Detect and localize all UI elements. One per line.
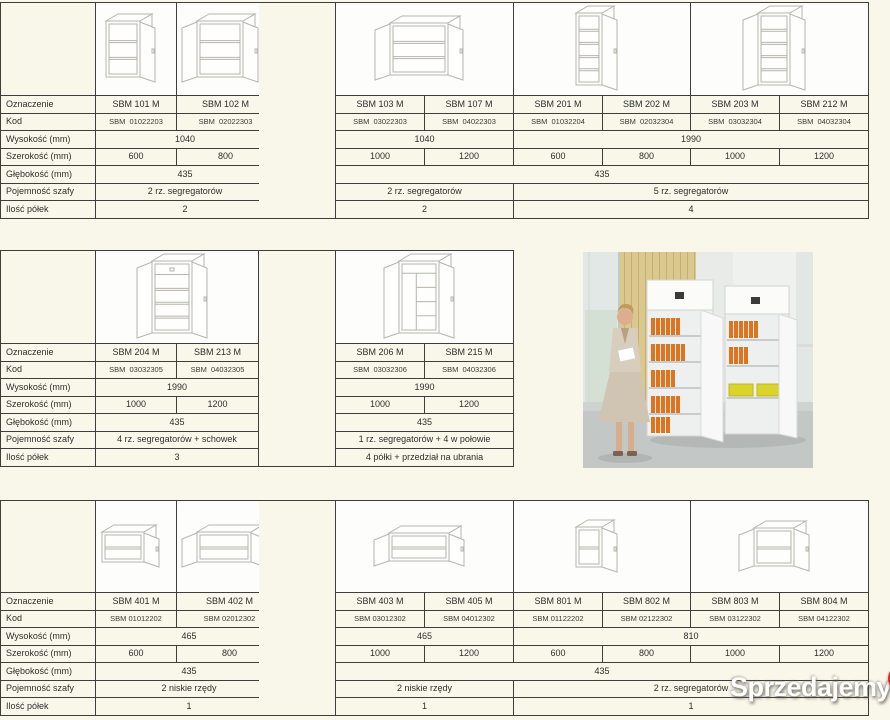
- drawing-row: [336, 3, 869, 96]
- row-label: Kod: [1, 361, 96, 379]
- spec-value-cell: 800: [603, 645, 691, 663]
- row-label: Pojemność szafy: [1, 183, 96, 201]
- product-code-cell: SBM 04032304: [780, 113, 869, 131]
- product-code-cell: SBM 01022203: [96, 113, 177, 131]
- row-label: Ilość półek: [1, 449, 96, 467]
- product-name-cell: SBM 202 M: [603, 96, 691, 114]
- row-label: Ilość półek: [1, 201, 96, 219]
- product-photo: [583, 252, 813, 468]
- cabinet-1door-5shelf-tall-icon: [514, 3, 691, 96]
- spec-row: 465810: [336, 628, 869, 646]
- spec-value-cell: 1990: [336, 379, 514, 397]
- spec-row: Wysokość (mm)1990: [1, 379, 259, 397]
- spec-row: Pojemność szafy2 niskie rzędy: [1, 680, 283, 698]
- row-label: Pojemność szafy: [1, 680, 96, 698]
- product-name-cell: SBM 204 M: [96, 344, 177, 362]
- spec-row: SBM 206 MSBM 215 M: [336, 344, 514, 362]
- spec-row: Wysokość (mm)465: [1, 628, 283, 646]
- spec-value-cell: 1000: [691, 645, 780, 663]
- product-name-cell: SBM 403 M: [336, 593, 425, 611]
- drawing-row: [1, 501, 283, 593]
- spec-value-cell: 1040: [96, 131, 275, 149]
- product-code-cell: SBM 04032305: [177, 361, 259, 379]
- product-code-cell: SBM 04012302: [425, 610, 514, 628]
- section-bottom-right-table: SBM 403 MSBM 405 MSBM 801 MSBM 802 MSBM …: [335, 500, 869, 716]
- product-code-cell: SBM 02122302: [603, 610, 691, 628]
- spec-value-cell: 2 niskie rzędy: [336, 680, 514, 698]
- spec-row: SBM 103 MSBM 107 MSBM 201 MSBM 202 MSBM …: [336, 96, 869, 114]
- table-gap-top: [259, 2, 335, 219]
- spec-row: KodSBM 01022203SBM 02022303: [1, 113, 275, 131]
- spec-value-cell: 435: [336, 414, 514, 432]
- row-label: Ilość półek: [1, 698, 96, 716]
- spec-table: SBM 103 MSBM 107 MSBM 201 MSBM 202 MSBM …: [335, 2, 869, 219]
- table-gap-bottom: [259, 500, 335, 716]
- spec-row: Szerokość (mm)600800: [1, 148, 275, 166]
- spec-value-cell: 1: [336, 698, 514, 716]
- cabinet-2door-2shelf-wide-icon: [336, 3, 514, 96]
- spec-value-cell: 435: [96, 663, 283, 681]
- empty-corner-cell: [1, 251, 96, 344]
- cabinet-1door-1shelf-low-icon: [96, 501, 177, 593]
- product-name-cell: SBM 804 M: [780, 593, 869, 611]
- spec-table: SBM 206 MSBM 215 MSBM 03032306SBM 040323…: [335, 250, 514, 467]
- spec-value-cell: 810: [514, 628, 869, 646]
- spec-value-cell: 1990: [514, 131, 869, 149]
- spec-row: Szerokość (mm)600800: [1, 645, 283, 663]
- spec-value-cell: 1000: [336, 148, 425, 166]
- product-code-cell: SBM 03012302: [336, 610, 425, 628]
- cabinet-2door-5shelf-tall-icon: [691, 3, 869, 96]
- spec-value-cell: 1000: [336, 396, 425, 414]
- spec-value-cell: 600: [514, 148, 603, 166]
- spec-value-cell: 1000: [691, 148, 780, 166]
- product-name-cell: SBM 803 M: [691, 593, 780, 611]
- spec-value-cell: 4: [514, 201, 869, 219]
- spec-table: OznaczenieSBM 204 MSBM 213 MKodSBM 03032…: [0, 250, 259, 467]
- spec-value-cell: 1200: [425, 396, 514, 414]
- spec-row: KodSBM 01012202SBM 02012302: [1, 610, 283, 628]
- spec-row: 435: [336, 414, 514, 432]
- table-gap-mid: [259, 250, 335, 467]
- spec-value-cell: 4 rz. segregatorów + schowek: [96, 431, 259, 449]
- spec-value-cell: 1200: [177, 396, 259, 414]
- spec-value-cell: 435: [96, 166, 275, 184]
- row-label: Szerokość (mm): [1, 396, 96, 414]
- spec-value-cell: 1 rz. segregatorów + 4 w połowie: [336, 431, 514, 449]
- spec-table: SBM 403 MSBM 405 MSBM 801 MSBM 802 MSBM …: [335, 500, 869, 716]
- spec-row: Ilość półek3: [1, 449, 259, 467]
- spec-value-cell: 3: [96, 449, 259, 467]
- spec-value-cell: 1200: [425, 148, 514, 166]
- row-label: Oznaczenie: [1, 344, 96, 362]
- product-code-cell: SBM 02032304: [603, 113, 691, 131]
- row-label: Kod: [1, 610, 96, 628]
- spec-row: OznaczenieSBM 101 MSBM 102 M: [1, 96, 275, 114]
- product-name-cell: SBM 103 M: [336, 96, 425, 114]
- spec-row: Pojemność szafy2 rz. segregatorów: [1, 183, 275, 201]
- row-label: Głębokość (mm): [1, 663, 96, 681]
- product-code-cell: SBM 04032306: [425, 361, 514, 379]
- product-name-cell: SBM 212 M: [780, 96, 869, 114]
- section-top-left-table: OznaczenieSBM 101 MSBM 102 MKodSBM 01022…: [0, 2, 275, 219]
- spec-value-cell: 465: [336, 628, 514, 646]
- spec-value-cell: 4 półki + przedział na ubrania: [336, 449, 514, 467]
- product-code-cell: SBM 03122302: [691, 610, 780, 628]
- row-label: Wysokość (mm): [1, 379, 96, 397]
- spec-row: OznaczenieSBM 401 MSBM 402 M: [1, 593, 283, 611]
- drawing-row: [1, 3, 275, 96]
- spec-value-cell: 435: [336, 663, 869, 681]
- spec-row: 1000120060080010001200: [336, 148, 869, 166]
- spec-table: OznaczenieSBM 401 MSBM 402 MKodSBM 01012…: [0, 500, 283, 716]
- spec-row: KodSBM 03032305SBM 04032305: [1, 361, 259, 379]
- spec-value-cell: 2 rz. segregatorów: [96, 183, 275, 201]
- spec-value-cell: 1000: [96, 396, 177, 414]
- spec-row: 1000120060080010001200: [336, 645, 869, 663]
- row-label: Kod: [1, 113, 96, 131]
- product-name-cell: SBM 801 M: [514, 593, 603, 611]
- cabinet-tall-wardrobe-icon: [336, 251, 514, 344]
- product-name-cell: SBM 107 M: [425, 96, 514, 114]
- row-label: Wysokość (mm): [1, 628, 96, 646]
- product-name-cell: SBM 802 M: [603, 593, 691, 611]
- empty-corner-cell: [1, 501, 96, 593]
- row-label: Głębokość (mm): [1, 166, 96, 184]
- spec-row: 4 półki + przedział na ubrania: [336, 449, 514, 467]
- section-top-right-table: SBM 103 MSBM 107 MSBM 201 MSBM 202 MSBM …: [335, 2, 869, 219]
- drawing-row: [336, 501, 869, 593]
- spec-row: Głębokość (mm)435: [1, 166, 275, 184]
- product-name-cell: SBM 401 M: [96, 593, 177, 611]
- spec-value-cell: 600: [514, 645, 603, 663]
- product-code-cell: SBM 03022303: [336, 113, 425, 131]
- spec-row: 1 rz. segregatorów + 4 w połowie: [336, 431, 514, 449]
- spec-row: Głębokość (mm)435: [1, 663, 283, 681]
- spec-value-cell: 1: [514, 698, 869, 716]
- spec-row: SBM 03032306SBM 04032306: [336, 361, 514, 379]
- row-label: Wysokość (mm): [1, 131, 96, 149]
- product-name-cell: SBM 206 M: [336, 344, 425, 362]
- product-code-cell: SBM 04122302: [780, 610, 869, 628]
- spec-value-cell: 800: [603, 148, 691, 166]
- spec-value-cell: 600: [96, 645, 177, 663]
- spec-row: 435: [336, 663, 869, 681]
- spec-row: Ilość półek2: [1, 201, 275, 219]
- spec-value-cell: 2: [96, 201, 275, 219]
- spec-row: SBM 403 MSBM 405 MSBM 801 MSBM 802 MSBM …: [336, 593, 869, 611]
- cabinet-2door-2row-small-icon: [691, 501, 869, 593]
- row-label: Głębokość (mm): [1, 414, 96, 432]
- row-label: Szerokość (mm): [1, 148, 96, 166]
- spec-value-cell: 2 rz. segregatorów: [336, 183, 514, 201]
- spec-row: OznaczenieSBM 204 MSBM 213 M: [1, 344, 259, 362]
- product-name-cell: SBM 201 M: [514, 96, 603, 114]
- section-mid-left-table: OznaczenieSBM 204 MSBM 213 MKodSBM 03032…: [0, 250, 259, 467]
- spec-row: Wysokość (mm)1040: [1, 131, 275, 149]
- spec-value-cell: 600: [96, 148, 177, 166]
- spec-row: 24: [336, 201, 869, 219]
- product-name-cell: SBM 405 M: [425, 593, 514, 611]
- spec-row: Szerokość (mm)10001200: [1, 396, 259, 414]
- cabinet-2door-1shelf-low-wide-icon: [336, 501, 514, 593]
- product-name-cell: SBM 213 M: [177, 344, 259, 362]
- product-code-cell: SBM 01012202: [96, 610, 177, 628]
- spec-row: Ilość półek1: [1, 698, 283, 716]
- spec-value-cell: 1040: [336, 131, 514, 149]
- spec-value-cell: 1000: [336, 645, 425, 663]
- section-mid-right-table: SBM 206 MSBM 215 MSBM 03032306SBM 040323…: [335, 250, 514, 467]
- row-label: Szerokość (mm): [1, 645, 96, 663]
- spec-value-cell: 1: [96, 698, 283, 716]
- product-code-cell: SBM 01122202: [514, 610, 603, 628]
- catalog-page: OznaczenieSBM 101 MSBM 102 MKodSBM 01022…: [0, 0, 890, 720]
- spec-row: 2 rz. segregatorów5 rz. segregatorów: [336, 183, 869, 201]
- empty-corner-cell: [1, 3, 96, 96]
- product-code-cell: SBM 03032304: [691, 113, 780, 131]
- cabinet-1door-2row-small-icon: [514, 501, 691, 593]
- spec-row: SBM 03022303SBM 04022303SBM 01032204SBM …: [336, 113, 869, 131]
- spec-value-cell: 1200: [425, 645, 514, 663]
- spec-value-cell: 2: [336, 201, 514, 219]
- office-scene: [583, 252, 813, 468]
- spec-value-cell: 435: [336, 166, 869, 184]
- drawing-row: [1, 251, 259, 344]
- spec-row: Głębokość (mm)435: [1, 414, 259, 432]
- spec-row: 11: [336, 698, 869, 716]
- spec-value-cell: 5 rz. segregatorów: [514, 183, 869, 201]
- spec-value-cell: 1200: [780, 645, 869, 663]
- row-label: Pojemność szafy: [1, 431, 96, 449]
- product-code-cell: SBM 04022303: [425, 113, 514, 131]
- product-name-cell: SBM 215 M: [425, 344, 514, 362]
- product-code-cell: SBM 01032204: [514, 113, 603, 131]
- row-label: Oznaczenie: [1, 593, 96, 611]
- spec-row: 10001200: [336, 396, 514, 414]
- product-code-cell: SBM 03032306: [336, 361, 425, 379]
- spec-row: 10401990: [336, 131, 869, 149]
- product-name-cell: SBM 203 M: [691, 96, 780, 114]
- cabinet-1door-2shelf-icon: [96, 3, 177, 96]
- row-label: Oznaczenie: [1, 96, 96, 114]
- spec-row: 2 niskie rzędy2 rz. segregatorów: [336, 680, 869, 698]
- spec-value-cell: 465: [96, 628, 283, 646]
- drawing-row: [336, 251, 514, 344]
- product-name-cell: SBM 101 M: [96, 96, 177, 114]
- spec-row: Pojemność szafy4 rz. segregatorów + scho…: [1, 431, 259, 449]
- spec-row: SBM 03012302SBM 04012302SBM 01122202SBM …: [336, 610, 869, 628]
- product-code-cell: SBM 03032305: [96, 361, 177, 379]
- photo-cabinets: [647, 280, 806, 448]
- spec-row: 435: [336, 166, 869, 184]
- spec-value-cell: 1200: [780, 148, 869, 166]
- spec-value-cell: 2 rz. segregatorów: [514, 680, 869, 698]
- spec-value-cell: 435: [96, 414, 259, 432]
- spec-value-cell: 2 niskie rzędy: [96, 680, 283, 698]
- section-bottom-left-table: OznaczenieSBM 401 MSBM 402 MKodSBM 01012…: [0, 500, 283, 716]
- spec-value-cell: 1990: [96, 379, 259, 397]
- spec-row: 1990: [336, 379, 514, 397]
- cabinet-tall-storage-top-icon: [96, 251, 259, 344]
- spec-table: OznaczenieSBM 101 MSBM 102 MKodSBM 01022…: [0, 2, 275, 219]
